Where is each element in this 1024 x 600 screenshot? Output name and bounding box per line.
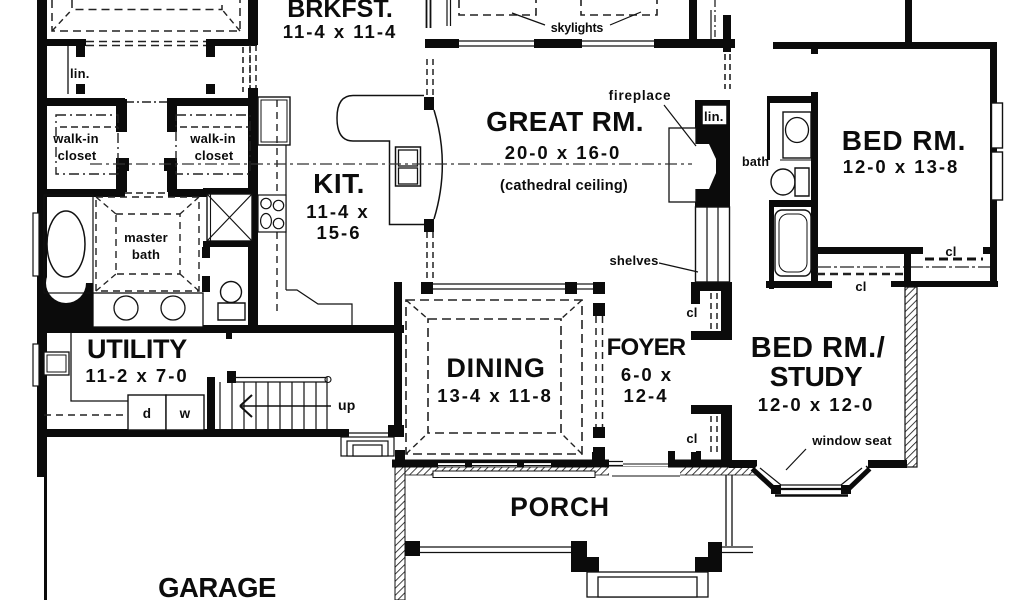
svg-text:11-4 x 11-4: 11-4 x 11-4 (283, 21, 398, 42)
svg-text:cl: cl (945, 244, 956, 259)
svg-text:master: master (124, 230, 168, 245)
svg-text:GARAGE: GARAGE (158, 572, 276, 600)
svg-text:12-0 x 12-0: 12-0 x 12-0 (758, 394, 875, 415)
svg-text:BED RM.: BED RM. (842, 125, 967, 156)
svg-text:13-4 x 11-8: 13-4 x 11-8 (437, 385, 553, 406)
svg-text:window seat: window seat (811, 433, 892, 448)
svg-text:20-0 x 16-0: 20-0 x 16-0 (505, 142, 622, 163)
svg-text:cl: cl (855, 279, 866, 294)
svg-text:lin.: lin. (70, 66, 90, 81)
svg-text:15-6: 15-6 (316, 222, 361, 243)
svg-text:closet: closet (58, 148, 97, 163)
svg-text:d: d (143, 406, 151, 421)
svg-text:KIT.: KIT. (313, 168, 365, 199)
svg-text:up: up (338, 397, 356, 413)
svg-text:cl: cl (686, 431, 697, 446)
svg-text:UTILITY: UTILITY (87, 334, 187, 364)
svg-text:lin.: lin. (704, 109, 724, 124)
svg-text:shelves: shelves (609, 253, 658, 268)
svg-text:12-0 x 13-8: 12-0 x 13-8 (843, 156, 960, 177)
svg-text:GREAT RM.: GREAT RM. (486, 106, 644, 137)
svg-text:DINING: DINING (446, 353, 545, 383)
svg-text:BRKFST.: BRKFST. (287, 0, 393, 23)
svg-text:STUDY: STUDY (770, 361, 863, 392)
svg-text:walk-in: walk-in (189, 131, 235, 146)
svg-text:BED RM./: BED RM./ (751, 332, 886, 364)
svg-text:cl: cl (686, 305, 697, 320)
svg-text:11-4 x: 11-4 x (306, 201, 369, 222)
svg-text:walk-in: walk-in (52, 131, 98, 146)
svg-text:w: w (179, 406, 191, 421)
svg-text:PORCH: PORCH (510, 492, 610, 522)
svg-text:11-2 x 7-0: 11-2 x 7-0 (85, 365, 188, 386)
svg-text:closet: closet (195, 148, 234, 163)
svg-text:skylights: skylights (551, 21, 604, 35)
svg-text:fireplace: fireplace (609, 88, 672, 103)
svg-text:bath: bath (132, 247, 160, 262)
svg-text:12-4: 12-4 (623, 385, 668, 406)
svg-text:6-0 x: 6-0 x (621, 364, 673, 385)
svg-text:(cathedral ceiling): (cathedral ceiling) (500, 178, 628, 194)
svg-text:bath: bath (742, 155, 769, 169)
svg-text:FOYER: FOYER (607, 334, 686, 361)
